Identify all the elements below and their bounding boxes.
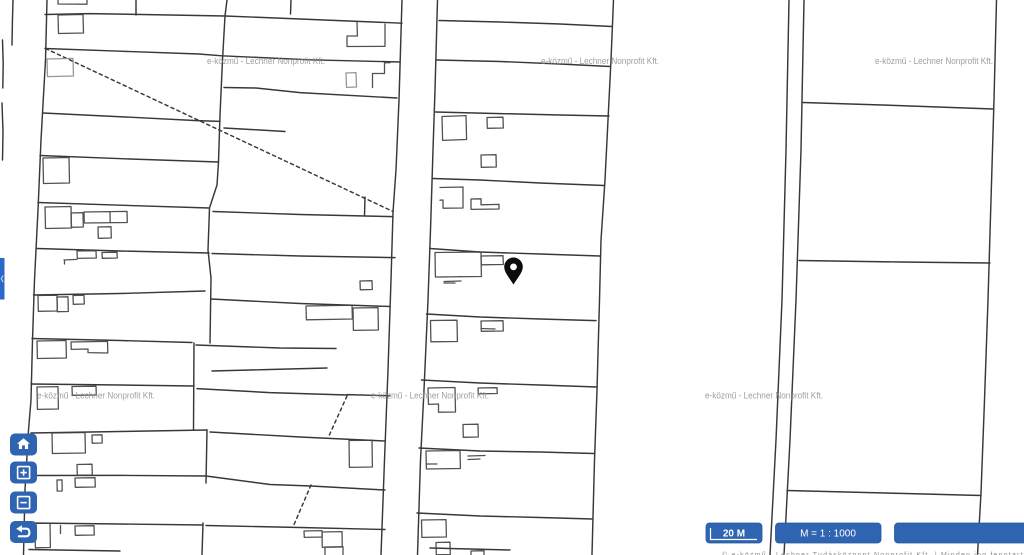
svg-text:© e-közmű | Lechner Tudásközpo: © e-közmű | Lechner Tudásközpont Nonprof… bbox=[722, 551, 1024, 555]
svg-text:e-közmű - Lechner Nonprofit Kf: e-közmű - Lechner Nonprofit Kft. bbox=[875, 56, 993, 66]
svg-text:e-közmű - Lechner Nonprofit Kf: e-közmű - Lechner Nonprofit Kft. bbox=[371, 391, 489, 401]
svg-text:e-közmű - Lechner Nonprofit Kf: e-közmű - Lechner Nonprofit Kft. bbox=[541, 56, 659, 66]
svg-text:e-közmű - Lechner Nonprofit Kf: e-közmű - Lechner Nonprofit Kft. bbox=[705, 391, 823, 401]
svg-text:M = 1 : 1000: M = 1 : 1000 bbox=[800, 529, 856, 540]
svg-text:e-közmű - Lechner Nonprofit Kf: e-közmű - Lechner Nonprofit Kft. bbox=[207, 56, 325, 66]
svg-text:e-közmű - Lechner Nonprofit Kf: e-közmű - Lechner Nonprofit Kft. bbox=[37, 391, 155, 401]
svg-text:20 M: 20 M bbox=[723, 529, 745, 540]
